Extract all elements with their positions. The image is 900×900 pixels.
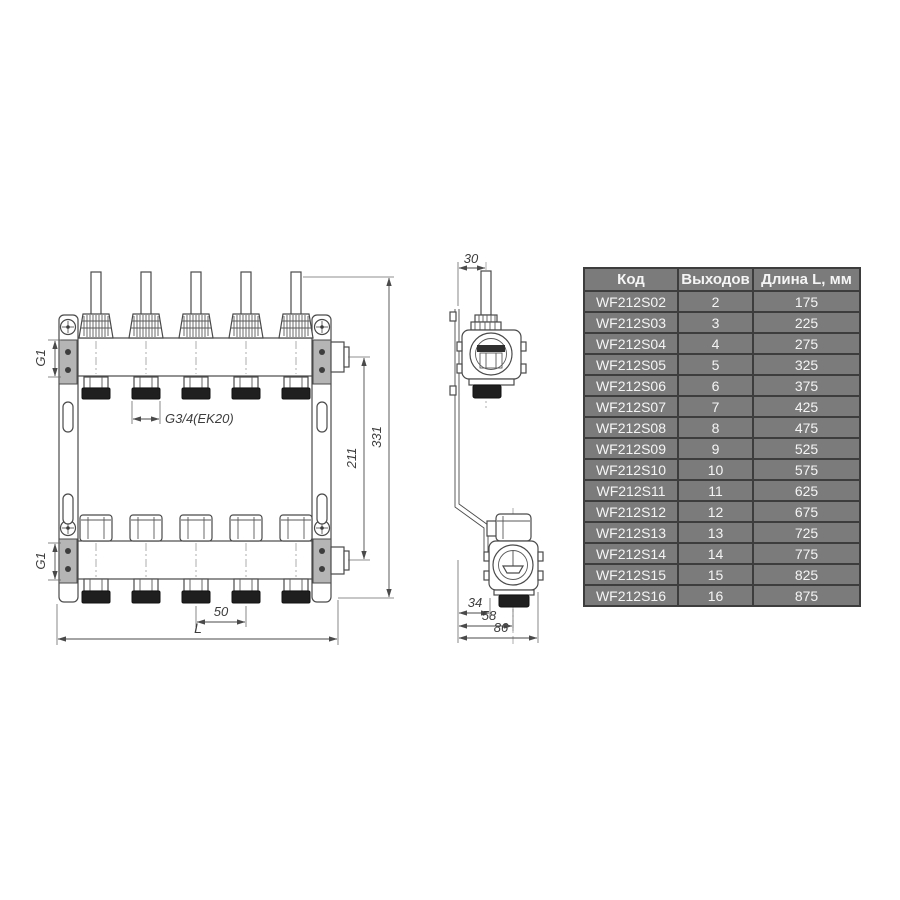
table-row: WF212S077425 [584, 396, 860, 417]
dim-outlet-center-height: 211 [344, 448, 359, 470]
cell-length: 425 [753, 396, 860, 417]
table-row: WF212S044275 [584, 333, 860, 354]
cell-length: 325 [753, 354, 860, 375]
col-header-length: Длина L, мм [753, 268, 860, 291]
cell-code: WF212S02 [584, 291, 678, 312]
cell-length: 525 [753, 438, 860, 459]
table-row: WF212S055325 [584, 354, 860, 375]
cell-code: WF212S13 [584, 522, 678, 543]
cell-code: WF212S16 [584, 585, 678, 606]
cell-outputs: 16 [678, 585, 753, 606]
dim-g1-bottom: G1 [33, 552, 48, 569]
dim-g1-top: G1 [33, 349, 48, 366]
cell-outputs: 6 [678, 375, 753, 396]
cell-code: WF212S15 [584, 564, 678, 585]
cell-code: WF212S08 [584, 417, 678, 438]
cell-length: 725 [753, 522, 860, 543]
cell-length: 625 [753, 480, 860, 501]
cell-code: WF212S11 [584, 480, 678, 501]
cell-outputs: 8 [678, 417, 753, 438]
cell-outputs: 13 [678, 522, 753, 543]
cell-length: 875 [753, 585, 860, 606]
table-row: WF212S1616875 [584, 585, 860, 606]
table-row: WF212S088475 [584, 417, 860, 438]
cell-outputs: 9 [678, 438, 753, 459]
cell-length: 825 [753, 564, 860, 585]
cell-code: WF212S07 [584, 396, 678, 417]
dim-outlet-thread: G3/4(EK20) [165, 411, 234, 426]
table-row: WF212S1414775 [584, 543, 860, 564]
table-header-row: Код Выходов Длина L, мм [584, 268, 860, 291]
cell-code: WF212S03 [584, 312, 678, 333]
cell-length: 475 [753, 417, 860, 438]
table-row: WF212S033225 [584, 312, 860, 333]
table-row: WF212S099525 [584, 438, 860, 459]
col-header-outputs: Выходов [678, 268, 753, 291]
cell-outputs: 12 [678, 501, 753, 522]
spec-table: Код Выходов Длина L, мм WF212S022175 WF2… [583, 267, 861, 607]
cell-code: WF212S05 [584, 354, 678, 375]
cell-code: WF212S12 [584, 501, 678, 522]
dim-total-height: 331 [369, 426, 384, 448]
cell-code: WF212S06 [584, 375, 678, 396]
cell-length: 675 [753, 501, 860, 522]
cell-code: WF212S14 [584, 543, 678, 564]
table-row: WF212S1111625 [584, 480, 860, 501]
dim-stem-offset: 30 [464, 251, 479, 266]
manifold-front-view [59, 272, 349, 603]
cell-code: WF212S04 [584, 333, 678, 354]
cell-outputs: 5 [678, 354, 753, 375]
cell-length: 275 [753, 333, 860, 354]
cell-length: 225 [753, 312, 860, 333]
right-bracket [312, 315, 331, 602]
table-row: WF212S1313725 [584, 522, 860, 543]
table-row: WF212S1010575 [584, 459, 860, 480]
cell-outputs: 4 [678, 333, 753, 354]
cell-outputs: 3 [678, 312, 753, 333]
cell-outputs: 15 [678, 564, 753, 585]
cell-outputs: 2 [678, 291, 753, 312]
page: { "drawing": { "front_view": { "g1_top":… [0, 0, 900, 900]
table-row: WF212S022175 [584, 291, 860, 312]
table-row: WF212S1212675 [584, 501, 860, 522]
col-header-code: Код [584, 268, 678, 291]
cell-length: 775 [753, 543, 860, 564]
cell-outputs: 10 [678, 459, 753, 480]
dim-outlet-spacing: 50 [214, 604, 229, 619]
dim-length: L [194, 620, 202, 636]
table-row: WF212S066375 [584, 375, 860, 396]
cell-outputs: 7 [678, 396, 753, 417]
cell-outputs: 14 [678, 543, 753, 564]
left-bracket [59, 315, 78, 602]
dim-bracket-depth: 34 [468, 595, 482, 610]
cell-outputs: 11 [678, 480, 753, 501]
manifold-side-view [450, 262, 543, 646]
manifold-technical-drawing: G1 G1 G3/4(EK20) 50 L 211 331 [0, 0, 580, 900]
cell-length: 375 [753, 375, 860, 396]
table-row: WF212S1515825 [584, 564, 860, 585]
cell-code: WF212S09 [584, 438, 678, 459]
dim-total-depth: 86 [494, 620, 509, 635]
cell-length: 575 [753, 459, 860, 480]
cell-length: 175 [753, 291, 860, 312]
cell-code: WF212S10 [584, 459, 678, 480]
